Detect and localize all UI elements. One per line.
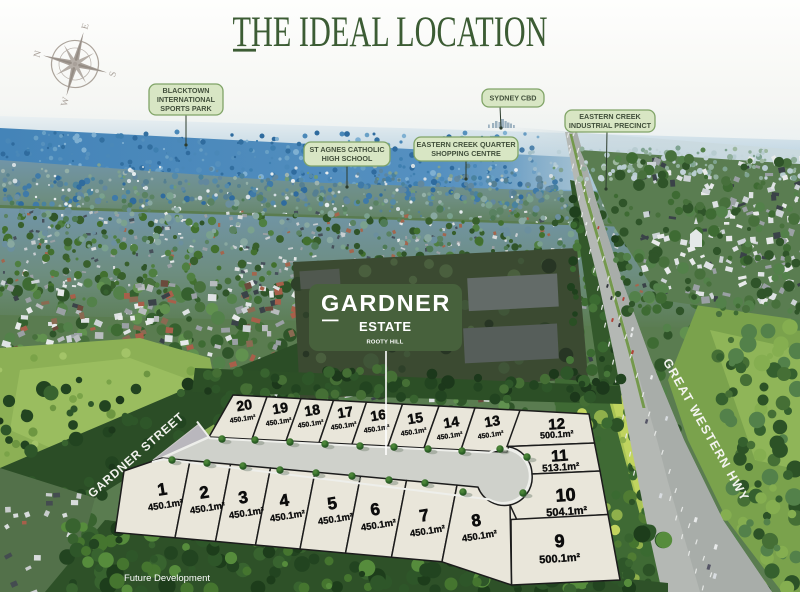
svg-text:14: 14 (442, 413, 460, 431)
svg-text:17: 17 (336, 403, 354, 421)
svg-text:13: 13 (483, 412, 501, 430)
svg-text:20: 20 (235, 396, 253, 414)
svg-text:INTERNATIONAL: INTERNATIONAL (157, 95, 216, 104)
svg-text:GARDNER: GARDNER (321, 290, 451, 316)
svg-text:INDUSTRIAL PRECINCT: INDUSTRIAL PRECINCT (569, 121, 652, 130)
svg-text:Future Development: Future Development (124, 573, 210, 584)
svg-text:ROOTY HILL: ROOTY HILL (367, 340, 404, 346)
svg-text:9: 9 (554, 531, 565, 552)
svg-text:HIGH SCHOOL: HIGH SCHOOL (322, 154, 373, 163)
svg-text:ST AGNES CATHOLIC: ST AGNES CATHOLIC (309, 145, 384, 154)
svg-text:EASTERN CREEK: EASTERN CREEK (579, 112, 641, 121)
svg-text:15: 15 (406, 409, 424, 427)
svg-text:SPORTS PARK: SPORTS PARK (160, 104, 212, 113)
svg-text:16: 16 (369, 406, 387, 424)
svg-text:THE IDEAL LOCATION: THE IDEAL LOCATION (233, 9, 548, 56)
svg-text:18: 18 (303, 401, 321, 419)
svg-text:EASTERN CREEK QUARTER: EASTERN CREEK QUARTER (416, 140, 516, 149)
svg-text:SYDNEY CBD: SYDNEY CBD (490, 94, 537, 103)
svg-text:19: 19 (271, 399, 289, 417)
svg-text:ESTATE: ESTATE (359, 319, 411, 334)
svg-text:10: 10 (555, 484, 576, 505)
svg-text:SHOPPING CENTRE: SHOPPING CENTRE (431, 149, 501, 158)
svg-text:BLACKTOWN: BLACKTOWN (163, 86, 210, 95)
